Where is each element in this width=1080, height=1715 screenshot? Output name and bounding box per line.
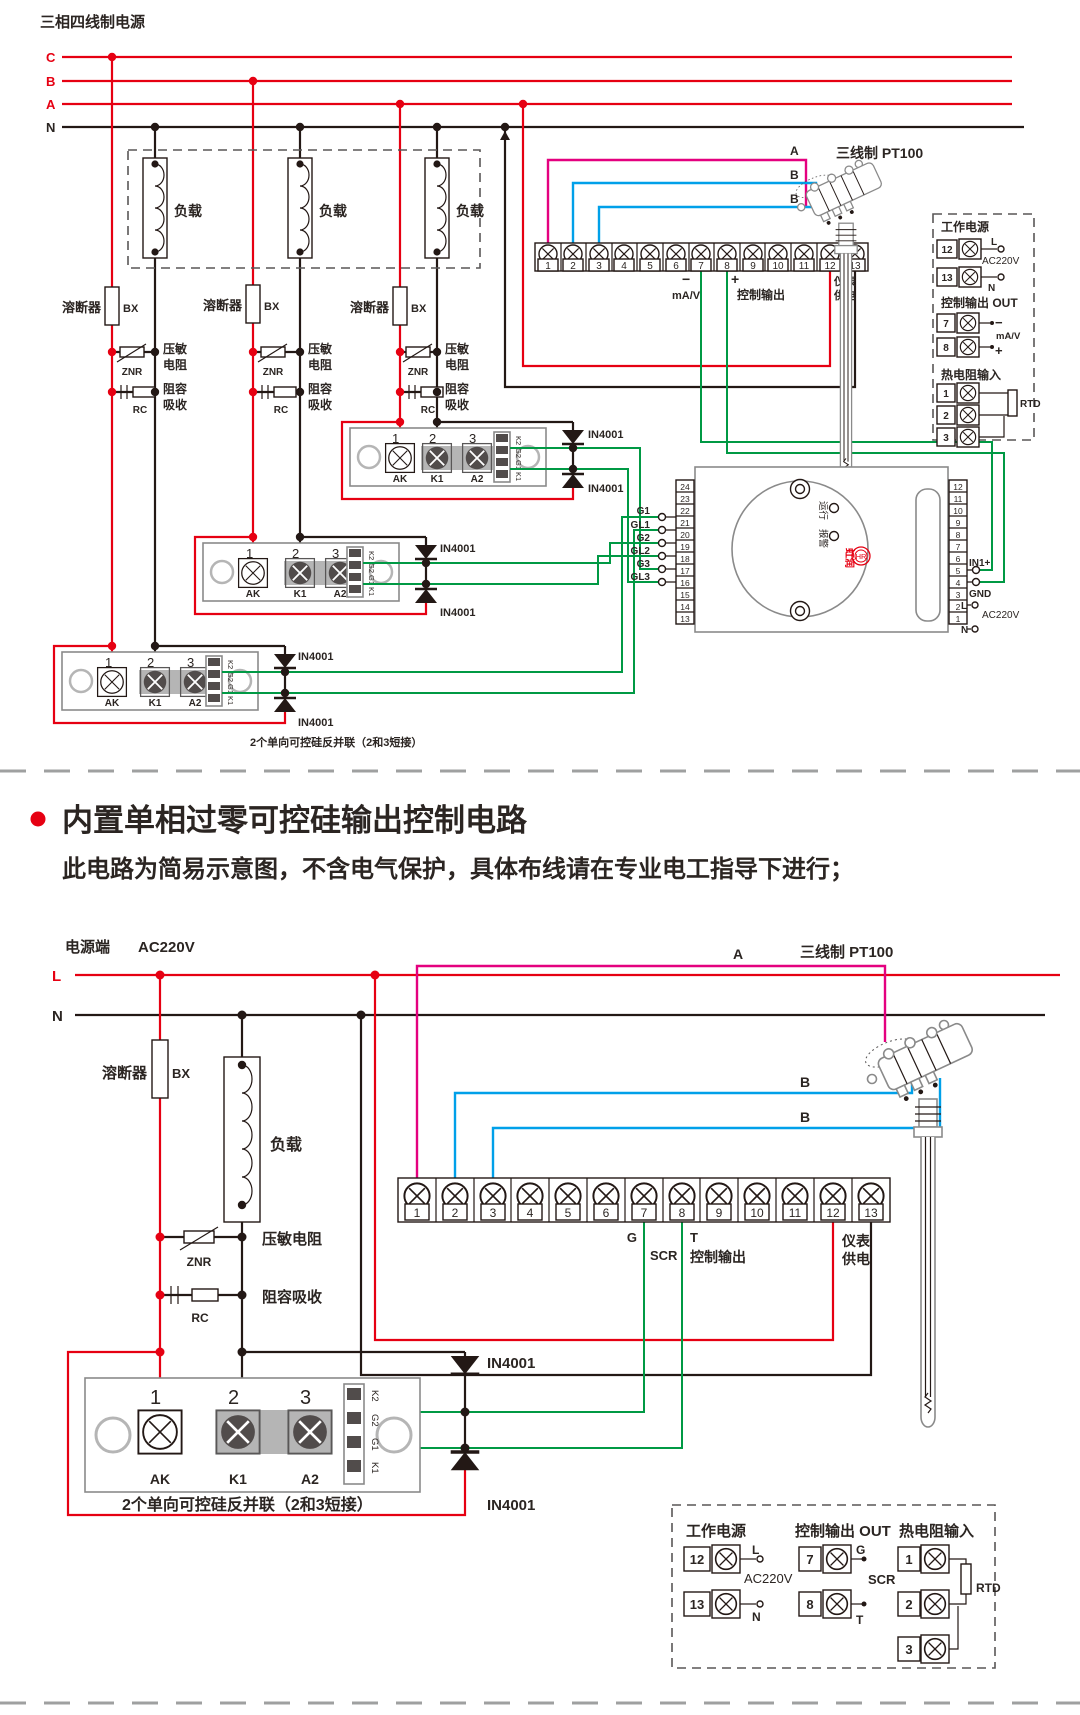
scr-module-2: 1 2 3 AK K1 A2 K2 G2 G1 K1 [203,543,399,601]
phase-b-label: B [46,74,55,89]
znr-3: ZNR [408,367,429,378]
strip-ctrl: 控制输出 [737,287,785,302]
wire-b2-label-bottom: B [800,1109,810,1125]
pt100-bottom-label: 三线制 PT100 [800,943,893,961]
svg-text:6: 6 [673,261,679,272]
svg-text:9: 9 [750,261,756,272]
varistor-3 [403,344,432,362]
m1-a2: A2 [189,698,202,709]
m3-mini-k1: K1 [514,472,523,481]
svg-text:8: 8 [724,261,730,272]
svg-text:2: 2 [943,411,949,422]
rc-bottom: RC 阻容吸收 [171,1286,322,1325]
diode-label-m3-bot: IN4001 [588,483,623,495]
svg-text:11: 11 [954,494,963,504]
m2-mini-k2: K2 [367,551,376,560]
strip-power-2-bottom: 供电 [841,1251,870,1267]
svg-text:1: 1 [943,389,949,400]
diode-bottom-bot-label: IN4001 [487,1497,535,1514]
bottom-diodes: IN4001 IN4001 [451,1355,536,1514]
scr-module-bottom: 1 2 3 AK K1 A2 K2 G2 G1 K1 [85,1378,420,1492]
wire-b1-label-bottom: B [800,1074,810,1090]
gate-g2: G2 [637,533,651,544]
znr-bottom: ZNR [187,1255,212,1269]
m1-k1: K1 [149,698,162,709]
trigger-n-label: N [961,625,968,636]
svg-text:12: 12 [690,1552,704,1567]
mb-n1: 1 [150,1387,161,1409]
m1-mini-k1: K1 [226,696,235,705]
strip-t-label: T [690,1230,698,1245]
m3-k1: K1 [431,474,444,485]
svg-text:7: 7 [698,261,704,272]
svg-text:9: 9 [956,518,961,528]
wire-a-label-top: A [790,144,799,158]
fuse-1-code: BX [123,303,139,315]
wire-a-label-bottom: A [733,946,743,962]
varistor-1-l2: 电阻 [163,357,187,372]
panel-top-mav: mA/V [996,331,1021,342]
panel-bot-t: T [856,1613,864,1627]
svg-text:3: 3 [956,590,961,600]
fuse-1 [105,287,119,325]
svg-text:1: 1 [905,1552,912,1567]
panel-bot-rtd: RTD [976,1581,1001,1595]
svg-text:11: 11 [799,261,810,272]
pt100-sensor-top: 三线制 PT100 [793,145,923,486]
svg-text:21: 21 [680,518,690,528]
panel-top-rtd-title: 热电阻输入 [941,367,1001,382]
svg-text:13: 13 [690,1597,704,1612]
svg-text:10: 10 [953,506,963,516]
rc-bottom-code: RC [191,1311,209,1325]
strip-scr-label: SCR [650,1248,678,1263]
legend-panel-bottom: 工作电源 控制输出 OUT 热电阻输入 12 L AC220V 13 N 7 G… [672,1505,1001,1668]
svg-text:8: 8 [956,530,961,540]
section-title: 内置单相过零可控硅输出控制电路 [62,803,528,838]
svg-text:9: 9 [716,1206,723,1220]
rc-3-l1: 阻容 [445,381,469,396]
panel-top-l: L [991,237,997,248]
diode-label-m1-top: IN4001 [298,651,333,663]
panel-top-out-title: 控制输出 OUT [941,295,1018,310]
strip-ctrl-bottom: 控制输出 [690,1249,746,1265]
mb-a2: A2 [301,1471,319,1487]
m1-n3: 3 [187,655,194,670]
scr-module-3: 1 2 3 AK K1 A2 K2 G2 G1 K1 [350,428,546,486]
caption-top: 2个单向可控硅反并联（2和3短接） [250,735,422,749]
panel-bot-power-title: 工作电源 [686,1522,746,1540]
varistor-2-l2: 电阻 [308,357,332,372]
diode-bottom-top-label: IN4001 [487,1355,535,1372]
svg-text:5: 5 [647,261,653,272]
load-bank: 负载 负载 负载 [128,150,484,268]
top-diagram: 三相四线制电源 C B A N 负载 负载 负载 [40,13,1041,749]
brand-logo: HR [856,552,867,561]
panel-top-ac: AC220V [982,256,1020,267]
svg-text:2: 2 [905,1597,912,1612]
wire-b1-label-top: B [790,168,799,182]
panel-bot-out-title: 控制输出 OUT [795,1522,891,1540]
panel-top-plus: + [995,343,1003,358]
scr-module-1: 1 2 3 AK K1 A2 K2 G2 G1 K1 [62,652,258,710]
mb-ak: AK [150,1471,170,1487]
strip-g-label: G [627,1230,637,1245]
svg-text:6: 6 [956,554,961,564]
trigger-ac-label: AC220V [982,610,1020,621]
varistor-bottom-label: 压敏电阻 [262,1230,322,1248]
svg-text:10: 10 [772,261,784,272]
line-n-label: N [52,1008,63,1025]
load-2-label: 负载 [319,203,347,219]
m2-n3: 3 [332,546,339,561]
m2-k1: K1 [294,589,307,600]
strip-power-1-bottom: 仪表 [841,1233,871,1249]
svg-text:12: 12 [824,261,836,272]
svg-text:13: 13 [864,1206,878,1220]
svg-text:12: 12 [953,482,963,492]
m1-mini-k2: K2 [226,660,235,669]
mb-mini-g1: G1 [369,1438,380,1451]
fuse-2 [246,285,260,323]
load-3 [425,158,449,258]
caption-bottom: 2个单向可控硅反并联（2和3短接） [122,1495,373,1514]
pt100-top-label: 三线制 PT100 [836,145,923,161]
svg-text:3: 3 [943,433,949,444]
rc-1-l1: 阻容 [163,381,187,396]
diode-label-m2-bot: IN4001 [440,607,475,619]
gate-g3: G3 [637,559,651,570]
varistor-bottom: ZNR 压敏电阻 [180,1227,322,1269]
panel-bot-scr: SCR [868,1572,896,1587]
znr-2: ZNR [263,367,284,378]
svg-text:2: 2 [570,261,576,272]
bullet-icon [31,812,46,827]
strip-plus: + [731,271,739,287]
diode-label-m3-top: IN4001 [588,429,623,441]
gate-gl2: GL2 [631,546,651,557]
trigger-module: 运行 报警 虹润 HR 24 23 22 21 20 19 18 17 16 1… [676,467,1020,636]
diode-label-m2-top: IN4001 [440,543,475,555]
varistor-3-l1: 压敏 [445,341,470,356]
fuse-bottom-label: 溶断器 [102,1064,148,1082]
schematic-canvas: 三相四线制电源 C B A N 负载 负载 负载 [0,0,1080,1710]
legend-panel-top: 工作电源 12 L AC220V 13 N 控制输出 OUT 7 − mA/V … [933,214,1041,447]
svg-text:17: 17 [680,566,690,576]
section-subtitle: 此电路为简易示意图，不含电气保护，具体布线请在专业电工指导下进行； [62,855,854,883]
m3-n1: 1 [392,431,399,446]
m3-mini-g2: G2 [514,448,523,458]
load-1-label: 负载 [174,203,202,219]
strip-minus: − [682,271,690,287]
svg-text:7: 7 [943,319,949,330]
fuse-3-label: 溶断器 [350,300,390,315]
fuse-2-label: 溶断器 [203,298,243,313]
mb-n2: 2 [228,1387,239,1409]
gnd-label: GND [969,589,991,600]
svg-text:7: 7 [956,542,961,552]
panel-top-minus: − [995,315,1003,330]
load-2 [288,158,312,258]
gate-g1: G1 [637,506,651,517]
varistor-3-l2: 电阻 [445,357,469,372]
phase-bus: C B A N [46,50,1024,135]
panel-bot-g: G [856,1543,865,1557]
svg-text:20: 20 [680,530,690,540]
rc-2-l1: 阻容 [308,381,332,396]
fuse-2-code: BX [264,301,280,313]
svg-text:4: 4 [527,1206,534,1220]
m3-a2: A2 [471,474,484,485]
panel-bot-ac: AC220V [744,1571,793,1586]
top-title: 三相四线制电源 [40,13,145,31]
fuse-3 [393,287,407,325]
panel-top-rtd: RTD [1020,399,1041,410]
mb-n3: 3 [300,1387,311,1409]
svg-text:8: 8 [943,343,949,354]
svg-text:11: 11 [789,1206,802,1220]
svg-text:13: 13 [941,273,953,284]
section-heading: 内置单相过零可控硅输出控制电路 此电路为简易示意图，不含电气保护，具体布线请在专… [31,803,855,883]
phase-c-label: C [46,50,56,65]
svg-text:8: 8 [679,1206,686,1220]
svg-text:7: 7 [641,1206,648,1220]
load-bottom: 负载 [224,1057,302,1222]
m1-n1: 1 [105,655,112,670]
load-bottom-label: 负载 [270,1135,302,1154]
mb-mini-k1: K1 [369,1462,380,1474]
wire-b2-label-top: B [790,192,799,206]
znr-1: ZNR [122,367,143,378]
varistor-1-l1: 压敏 [163,341,188,356]
panel-bot-rtd-title: 热电阻输入 [899,1522,974,1540]
m1-mini-g2: G2 [226,672,235,682]
rc-2-l2: 吸收 [308,397,332,412]
svg-text:6: 6 [603,1206,610,1220]
m3-ak: AK [393,474,408,485]
rc-2-code: RC [274,405,288,416]
svg-text:3: 3 [905,1642,912,1657]
gate-gl3: GL3 [631,572,651,583]
mb-k1: K1 [229,1471,247,1487]
in1-label: IN1+ [969,558,991,569]
rc-3-l2: 吸收 [445,397,469,412]
svg-text:7: 7 [806,1552,813,1567]
svg-text:8: 8 [806,1597,813,1612]
neutral-label: N [46,120,55,135]
source-voltage: AC220V [138,939,195,956]
line-l-label: L [52,968,61,985]
varistor-1 [117,344,146,362]
strip-mav: mA/V [672,290,701,302]
svg-text:1: 1 [545,261,551,272]
svg-text:3: 3 [490,1206,497,1220]
fuse-1-label: 溶断器 [62,300,102,315]
m3-n2: 2 [429,431,436,446]
svg-text:2: 2 [956,602,961,612]
phase-a-label: A [46,97,56,112]
svg-text:22: 22 [680,506,690,516]
panel-bot-l: L [752,1543,759,1557]
svg-text:14: 14 [680,602,690,612]
svg-text:18: 18 [680,554,690,564]
source-label: 电源端 [65,938,110,956]
svg-text:16: 16 [680,578,690,588]
varistor-2-l1: 压敏 [308,341,333,356]
gate-gl1: GL1 [631,520,651,531]
m2-n2: 2 [292,546,299,561]
m2-a2: A2 [334,589,347,600]
panel-top-n: N [988,283,995,294]
wiring-diagram-page: 三相四线制电源 C B A N 负载 负载 负载 [0,0,1080,1710]
svg-text:4: 4 [956,578,961,588]
rc-1-l2: 吸收 [163,397,187,412]
svg-text:12: 12 [826,1206,840,1220]
svg-text:1: 1 [414,1206,421,1220]
run-indicator-label: 运行 [817,501,829,521]
svg-text:1: 1 [956,614,961,624]
rc-bottom-label: 阻容吸收 [262,1288,322,1306]
svg-text:19: 19 [680,542,690,552]
svg-text:3: 3 [596,261,602,272]
mb-mini-g2: G2 [369,1414,380,1427]
svg-text:4: 4 [621,261,627,272]
mb-mini-k2: K2 [369,1390,380,1402]
m1-ak: AK [105,698,120,709]
load-1 [143,158,167,258]
alarm-indicator-label: 报警 [817,529,829,549]
m2-mini-g2: G2 [367,563,376,573]
fuse-bottom: 溶断器 BX [102,1040,190,1098]
svg-text:10: 10 [750,1206,764,1220]
svg-text:5: 5 [956,566,961,576]
svg-text:2: 2 [452,1206,459,1220]
panel-top-power-title: 工作电源 [941,219,989,234]
bottom-diagram: 电源端 AC220V L N 溶断器 BX 负载 ZNR 压敏电阻 [52,938,1060,1668]
fuse-3-code: BX [411,303,427,315]
rc-3-code: RC [421,405,435,416]
m3-n3: 3 [469,431,476,446]
m3-mini-k2: K2 [514,436,523,445]
fuse-bottom-code: BX [172,1066,190,1081]
diode-label-m1-bot: IN4001 [298,717,333,729]
fuses-top: 溶断器 BX 溶断器 BX 溶断器 BX [62,285,427,325]
svg-text:5: 5 [565,1206,572,1220]
trigger-l-label: L [961,601,967,612]
panel-bot-n: N [752,1610,761,1624]
varistor-2 [258,344,287,362]
m1-n2: 2 [147,655,154,670]
rc-1-code: RC [133,405,147,416]
svg-text:13: 13 [680,614,690,624]
svg-text:24: 24 [680,482,690,492]
m2-n1: 1 [246,546,253,561]
m2-mini-k1: K1 [367,587,376,596]
svg-text:15: 15 [680,590,690,600]
m2-ak: AK [246,589,261,600]
load-3-label: 负载 [456,203,484,219]
svg-text:23: 23 [680,494,690,504]
svg-text:12: 12 [941,245,953,256]
